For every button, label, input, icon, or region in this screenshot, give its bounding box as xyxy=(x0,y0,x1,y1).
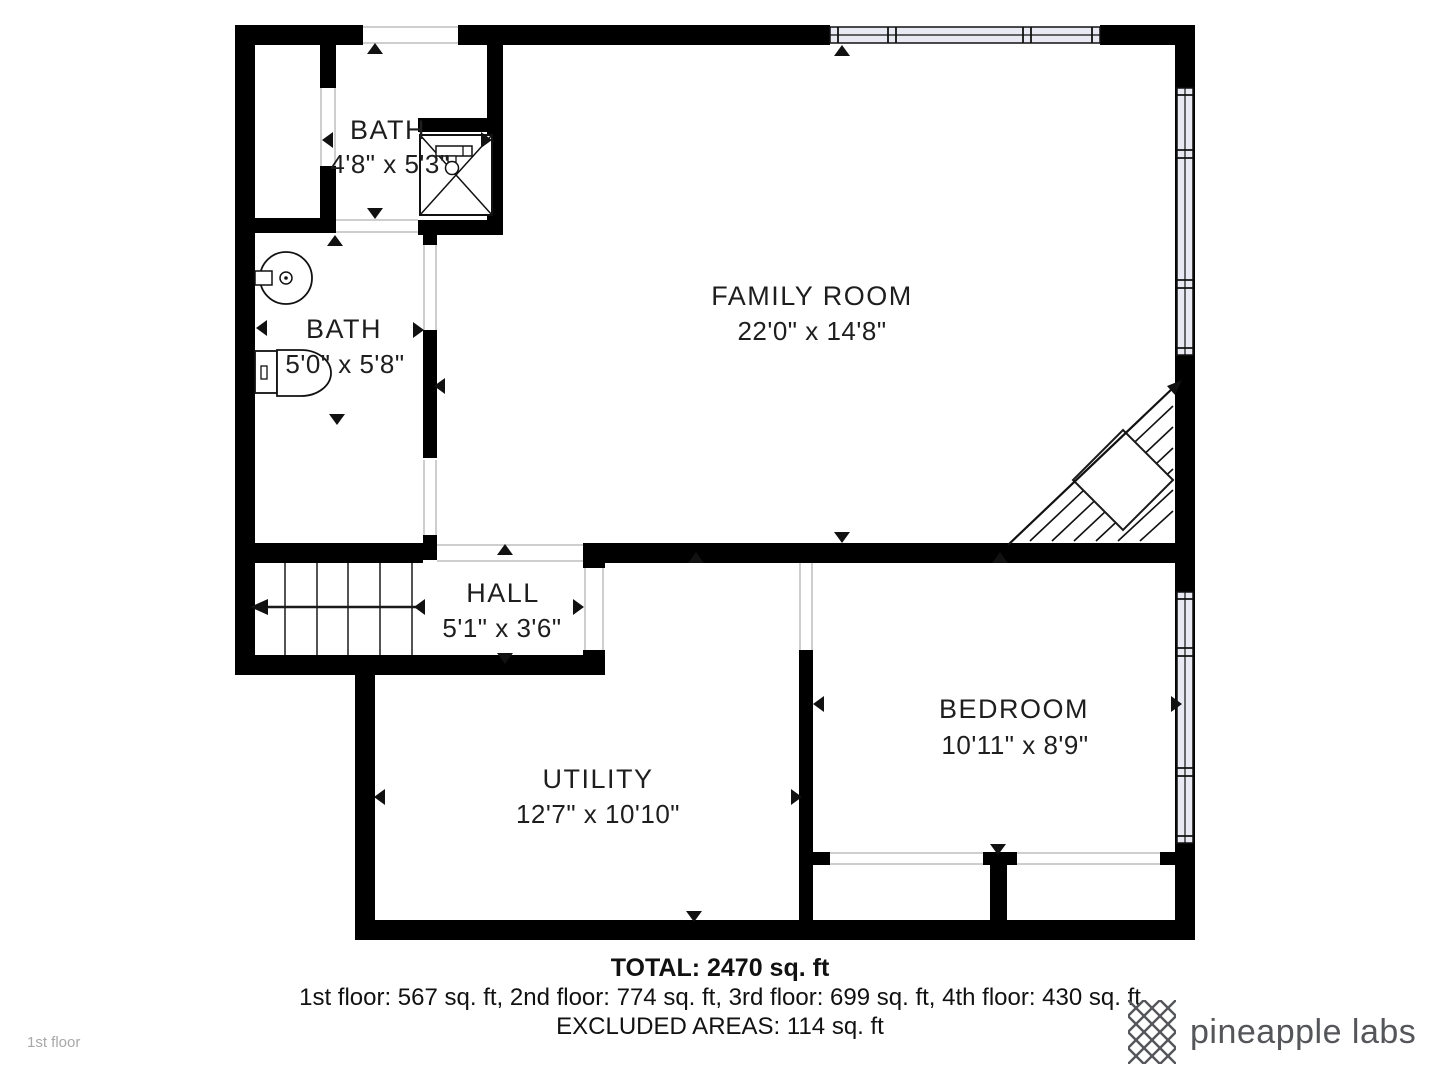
room-dims-bath-top: 4'8" x 5'3" xyxy=(330,149,449,179)
room-dims-hall: 5'1" x 3'6" xyxy=(442,613,561,643)
room-label-hall: HALL xyxy=(466,578,540,608)
brand-name: pineapple labs xyxy=(1190,1013,1416,1052)
winder-staircase-icon xyxy=(1008,380,1182,545)
room-dims-utility: 12'7" x 10'10" xyxy=(516,799,680,829)
room-dims-bath-main: 5'0" x 5'8" xyxy=(285,349,404,379)
brand-logo: pineapple labs xyxy=(1128,1000,1416,1064)
room-label-bath-main: BATH xyxy=(306,314,382,344)
floor-label: 1st floor xyxy=(27,1034,80,1051)
room-label-bath-top: BATH xyxy=(350,115,426,145)
window-icon-right-lower xyxy=(1177,592,1193,843)
floor-plan: BATH 4'8" x 5'3" BATH 5'0" x 5'8" FAMILY… xyxy=(0,0,1440,1080)
room-label-utility: UTILITY xyxy=(542,764,653,794)
staircase-icon xyxy=(250,563,416,655)
total-area-text: TOTAL: 2470 sq. ft xyxy=(0,954,1440,983)
window-icon-right-upper xyxy=(1177,88,1193,355)
sink-icon xyxy=(255,252,312,304)
room-dims-bedroom: 10'11" x 8'9" xyxy=(941,730,1088,760)
room-label-family-room: FAMILY ROOM xyxy=(711,281,913,311)
room-label-bedroom: BEDROOM xyxy=(939,694,1089,724)
room-dims-family-room: 22'0" x 14'8" xyxy=(737,316,886,346)
window-icon-top-wall xyxy=(830,27,1100,43)
brand-lattice-icon xyxy=(1128,1000,1176,1064)
